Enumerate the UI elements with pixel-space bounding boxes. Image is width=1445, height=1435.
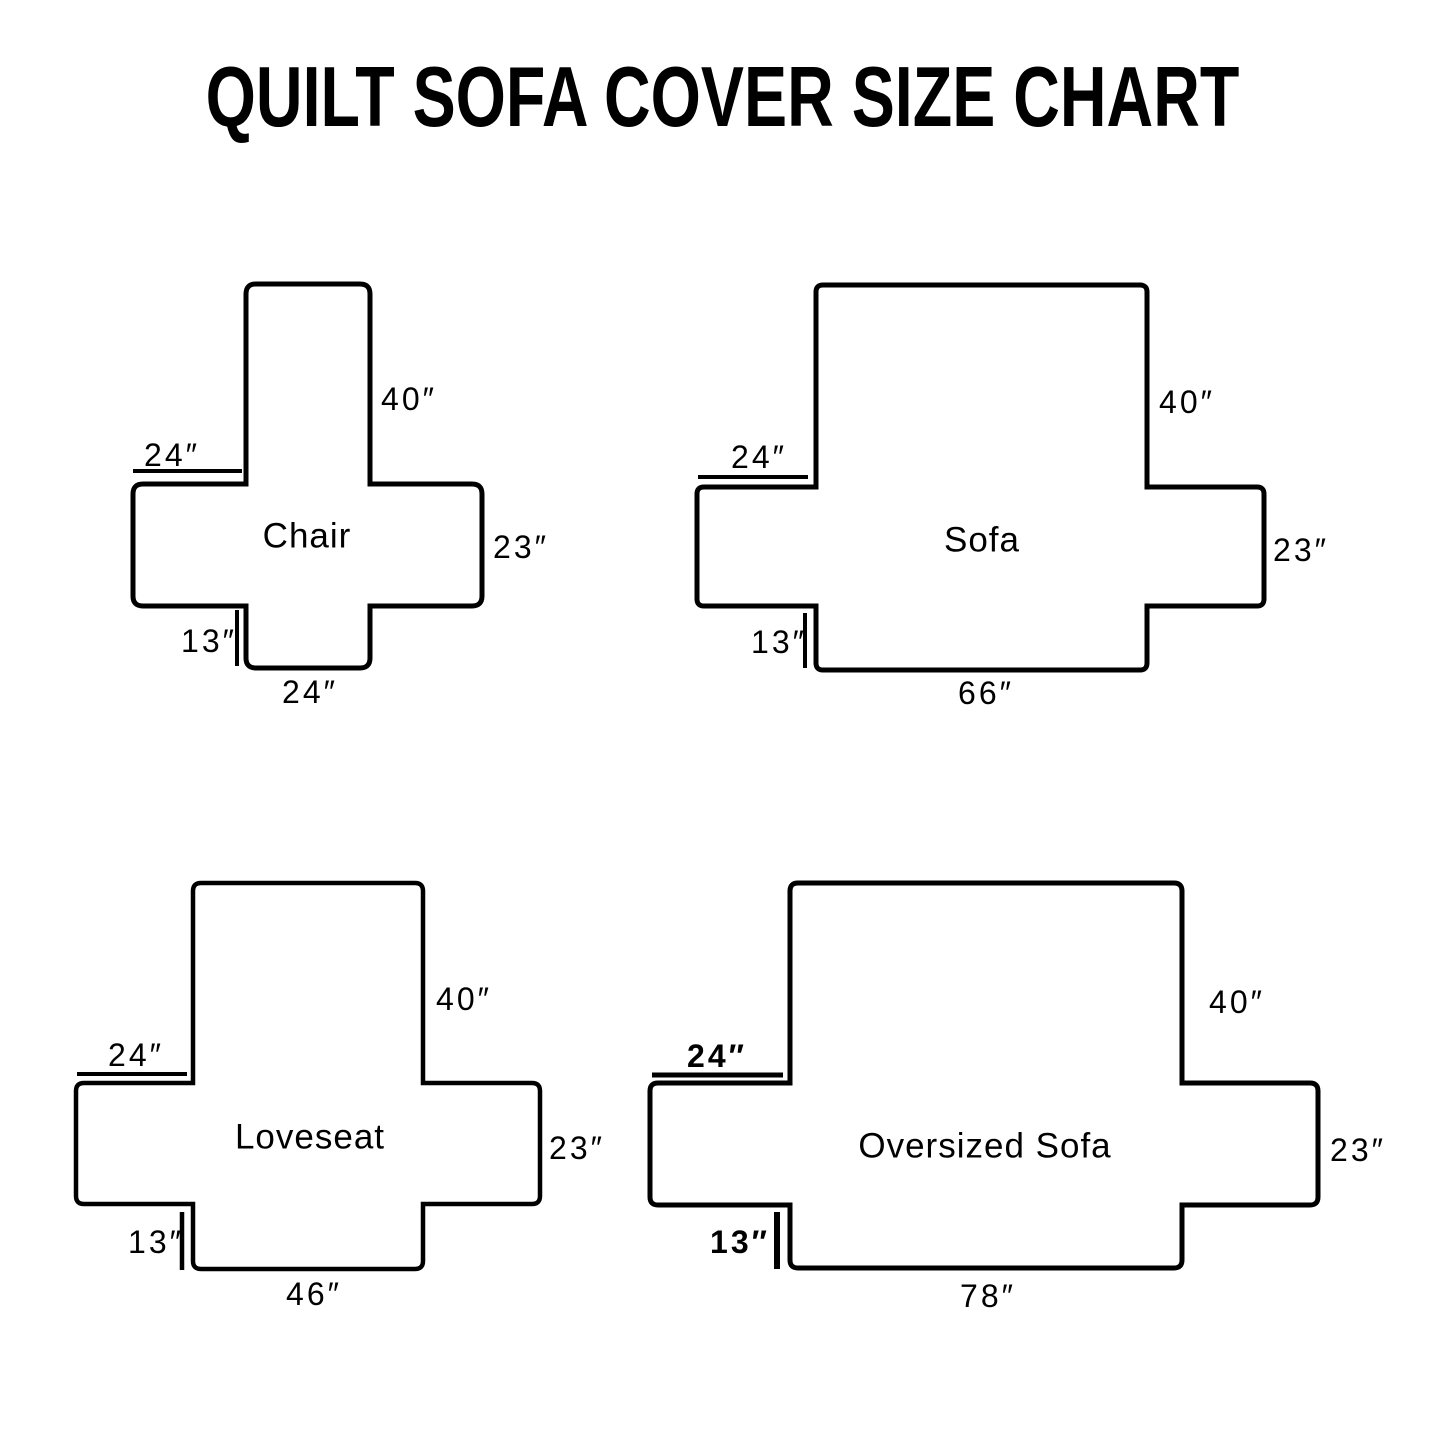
- chair-back-height-label: 40″: [381, 383, 437, 415]
- loveseat-front-drop-label: 13″: [128, 1226, 184, 1258]
- loveseat-back-height-label: 40″: [436, 983, 492, 1015]
- oversized-sofa-arm-width-label: 24″: [687, 1040, 747, 1072]
- size-chart-page: QUILT SOFA COVER SIZE CHART Chair 40″ 24…: [0, 0, 1445, 1435]
- sofa-seat-width-label: 66″: [958, 677, 1014, 709]
- chair-name-label: Chair: [263, 519, 352, 554]
- chair-seat-width-label: 24″: [282, 676, 338, 708]
- oversized-sofa-front-drop-label: 13″: [710, 1226, 770, 1258]
- oversized-sofa-back-height-label: 40″: [1209, 986, 1265, 1018]
- loveseat-side-height-label: 23″: [549, 1132, 605, 1164]
- diagram-shapes: [0, 0, 1445, 1435]
- oversized-sofa-seat-width-label: 78″: [960, 1280, 1016, 1312]
- loveseat-arm-width-label: 24″: [108, 1039, 164, 1071]
- sofa-arm-width-label: 24″: [731, 441, 787, 473]
- chair-outline: [133, 284, 482, 668]
- loveseat-name-label: Loveseat: [235, 1120, 385, 1155]
- sofa-back-height-label: 40″: [1159, 386, 1215, 418]
- chair-side-height-label: 23″: [493, 531, 549, 563]
- oversized-sofa-side-height-label: 23″: [1330, 1134, 1386, 1166]
- sofa-side-height-label: 23″: [1273, 534, 1329, 566]
- sofa-name-label: Sofa: [944, 523, 1020, 558]
- oversized-sofa-name-label: Oversized Sofa: [858, 1129, 1111, 1164]
- chair-arm-width-label: 24″: [144, 439, 200, 471]
- sofa-front-drop-label: 13″: [751, 626, 807, 658]
- chair-front-drop-label: 13″: [181, 625, 237, 657]
- loveseat-seat-width-label: 46″: [286, 1278, 342, 1310]
